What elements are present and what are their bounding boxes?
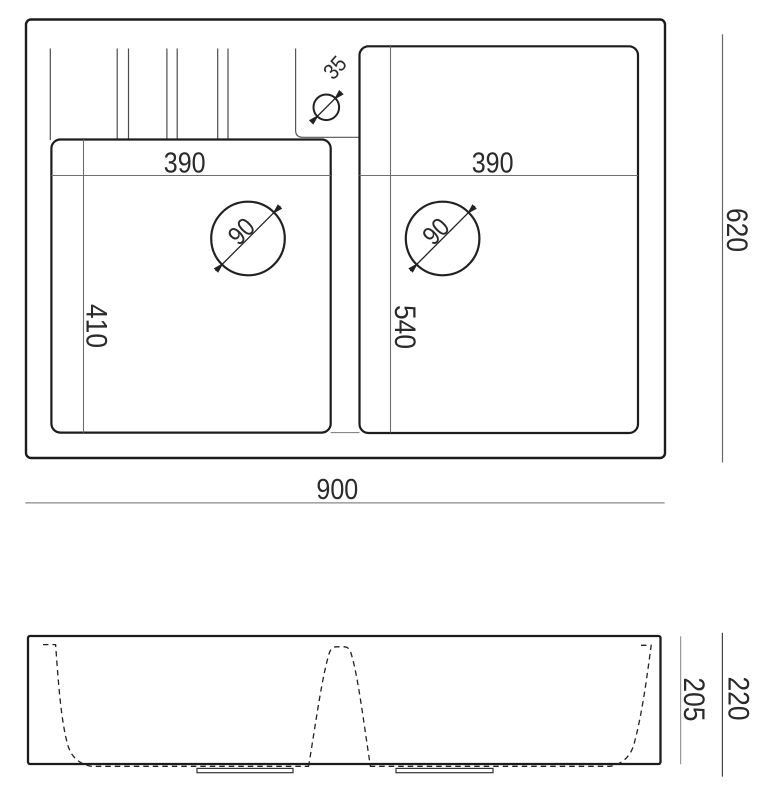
- svg-text:900: 900: [316, 473, 358, 505]
- svg-text:90: 90: [417, 213, 455, 251]
- svg-text:620: 620: [721, 208, 755, 252]
- svg-text:390: 390: [164, 147, 206, 179]
- svg-text:410: 410: [80, 304, 114, 348]
- svg-text:35: 35: [319, 52, 352, 85]
- svg-text:540: 540: [389, 305, 423, 349]
- svg-text:90: 90: [223, 213, 261, 251]
- svg-text:390: 390: [472, 147, 514, 179]
- svg-text:220: 220: [722, 676, 756, 720]
- svg-text:205: 205: [678, 677, 712, 721]
